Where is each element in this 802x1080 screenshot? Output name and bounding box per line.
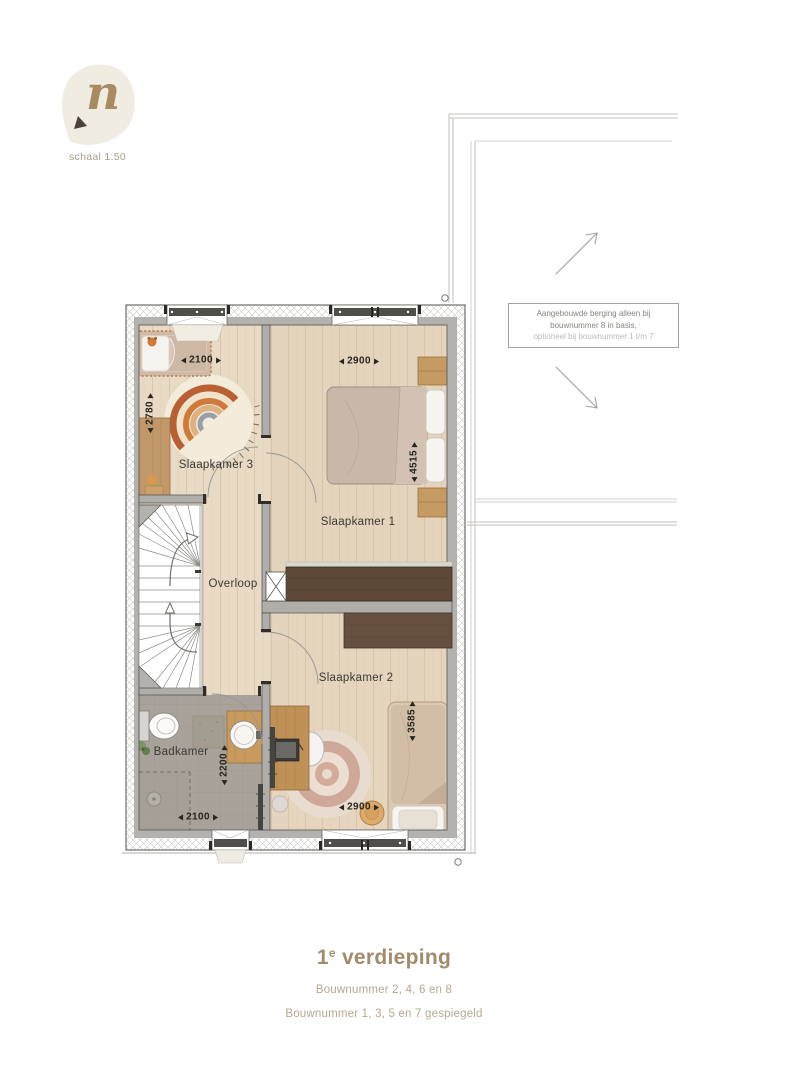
dimension-s3-width: 2100 (181, 355, 221, 366)
room-label-slaapkamer3: Slaapkamer 3 (179, 459, 254, 471)
berging-note-line1: Aangebouwde berging alleen bij (512, 308, 675, 320)
dimension-s3-depth: 2780 (145, 393, 156, 433)
floorplan-page: { "logo": { "letter": "n", "scale_label"… (0, 0, 802, 1080)
berging-note-line3: optioneel bij bouwnummer 1 t/m 7 (512, 331, 675, 343)
roof-slope-arrow-down (556, 367, 597, 408)
dimension-s2-depth: 3585 (407, 701, 418, 741)
washbasin (227, 711, 262, 763)
rainpipe-symbol-top (442, 295, 448, 301)
subtitle-bouwnummers: Bouwnummer 2, 4, 6 en 8 (184, 984, 584, 996)
dim-arrow-up (147, 393, 153, 398)
dimension-bad-depth: 2200 (219, 745, 230, 785)
room-label-slaapkamer2: Slaapkamer 2 (319, 672, 394, 684)
title-superscript: e (329, 946, 336, 960)
scale-label: schaal 1:50 (69, 151, 126, 163)
room-label-slaapkamer1: Slaapkamer 1 (321, 516, 396, 528)
bath-mat (193, 716, 224, 748)
title-number: 1 (317, 946, 329, 969)
dim-arrow-down (147, 428, 153, 433)
dim-arrow-down (411, 477, 417, 482)
dimension-s1-depth: 4515 (409, 442, 420, 482)
computer-monitor (273, 739, 303, 761)
title-text: verdieping (336, 946, 451, 969)
nightstand-bottom (418, 488, 447, 517)
dim-arrow-right (216, 357, 221, 363)
berging-note-line2: bouwnummer 8 in basis, (512, 320, 675, 332)
dim-arrow-left (339, 804, 344, 810)
stairs (139, 505, 202, 688)
dimension-s2-width: 2900 (339, 802, 379, 813)
dim-arrow-right (374, 804, 379, 810)
roof-slope-arrow-up (556, 233, 597, 274)
window-badkamer (209, 830, 252, 863)
berging-outline (449, 114, 678, 853)
duct-column (266, 572, 286, 601)
dimension-s1-width: 2900 (339, 356, 379, 367)
rainpipe-symbol-bottom (455, 859, 461, 865)
pouf (272, 796, 288, 812)
dimension-bad-width: 2100 (178, 812, 218, 823)
room-label-badkamer: Badkamer (154, 746, 209, 758)
room-label-overloop: Overloop (208, 578, 257, 590)
berging-note: Aangebouwde berging alleen bij bouwnumme… (508, 303, 679, 348)
subtitle-gespiegeld: Bouwnummer 1, 3, 5 en 7 gespiegeld (184, 1008, 584, 1020)
dim-arrow-right (374, 358, 379, 364)
page-title: 1e verdieping (184, 946, 584, 970)
wardrobe-slaapkamer1 (286, 567, 452, 601)
dim-arrow-down (221, 780, 227, 785)
dim-arrow-down (409, 736, 415, 741)
dim-arrow-left (339, 358, 344, 364)
dim-arrow-up (221, 745, 227, 750)
wardrobe-shelf-edge (286, 562, 452, 567)
dim-arrow-left (178, 814, 183, 820)
dim-arrow-up (411, 442, 417, 447)
window-slaapkamer1 (329, 305, 421, 325)
logo-letter: n (86, 66, 120, 121)
wardrobe-slaapkamer2 (344, 613, 452, 648)
nightstand-top (418, 357, 447, 385)
dim-arrow-right (213, 814, 218, 820)
dim-arrow-up (409, 701, 415, 706)
toilet (139, 711, 179, 741)
single-bed (388, 702, 448, 837)
double-bed (327, 387, 445, 484)
window-slaapkamer2 (319, 830, 411, 850)
dim-arrow-left (181, 357, 186, 363)
